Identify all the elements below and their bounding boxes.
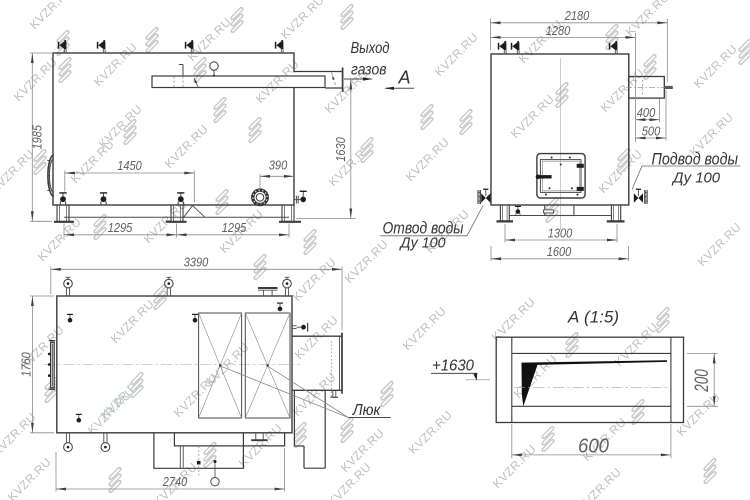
svg-text:KVZR.RU: KVZR.RU [27,0,76,32]
svg-text:KVZR.RU: KVZR.RU [695,220,744,269]
svg-text:KVZR.RU: KVZR.RU [108,297,157,346]
svg-text:Ду 100: Ду 100 [399,235,447,252]
svg-text:3390: 3390 [184,255,209,270]
svg-text:KVZR.RU: KVZR.RU [85,388,134,437]
svg-text:1295: 1295 [222,220,247,235]
svg-text:KVZR.RU: KVZR.RU [575,465,624,500]
svg-text:1280: 1280 [546,23,571,38]
svg-text:1760: 1760 [19,352,34,377]
svg-text:KVZR.RU: KVZR.RU [691,42,740,91]
svg-text:газов: газов [351,62,387,79]
svg-text:KVZR.RU: KVZR.RU [162,122,211,171]
svg-text:KVZR.RU: KVZR.RU [292,313,341,362]
svg-text:Выход: Выход [351,40,390,57]
svg-text:Люк: Люк [352,402,382,419]
svg-text:KVZR.RU: KVZR.RU [400,304,449,353]
svg-text:600: 600 [578,436,609,458]
svg-text:KVZR.RU: KVZR.RU [5,455,54,500]
svg-text:KVZR.RU: KVZR.RU [278,0,327,42]
svg-text:KVZR.RU: KVZR.RU [511,352,560,401]
svg-text:1300: 1300 [548,225,573,240]
svg-text:390: 390 [269,158,288,173]
svg-text:2740: 2740 [162,474,188,489]
svg-text:KVZR.RU: KVZR.RU [342,237,391,286]
svg-text:KVZR.RU: KVZR.RU [674,390,723,439]
svg-text:1985: 1985 [30,124,45,149]
svg-text:KVZR.RU: KVZR.RU [68,137,117,186]
svg-text:KVZR.RU: KVZR.RU [171,371,220,420]
svg-text:KVZR.RU: KVZR.RU [406,408,455,457]
svg-text:KVZR.RU: KVZR.RU [508,92,557,141]
svg-text:+1630: +1630 [432,358,474,375]
svg-text:1295: 1295 [108,220,133,235]
svg-text:KVZR.RU: KVZR.RU [0,147,37,196]
svg-text:А (1:5): А (1:5) [567,308,619,327]
svg-text:1600: 1600 [547,244,572,259]
svg-text:KVZR.RU: KVZR.RU [623,0,672,39]
svg-text:KVZR.RU: KVZR.RU [403,135,452,184]
svg-text:1450: 1450 [117,158,142,173]
svg-text:KVZR.RU: KVZR.RU [290,255,339,304]
svg-text:А: А [398,68,411,88]
svg-text:KVZR.RU: KVZR.RU [490,442,539,491]
svg-text:200: 200 [692,369,713,393]
svg-text:2180: 2180 [564,8,590,23]
svg-text:1630: 1630 [333,137,348,162]
svg-text:KVZR.RU: KVZR.RU [185,15,234,64]
svg-text:KVZR.RU: KVZR.RU [0,410,39,459]
svg-text:KVZR.RU: KVZR.RU [432,30,481,79]
svg-text:400: 400 [637,105,656,120]
svg-text:500: 500 [642,123,661,138]
svg-text:Ду 100: Ду 100 [671,169,721,186]
